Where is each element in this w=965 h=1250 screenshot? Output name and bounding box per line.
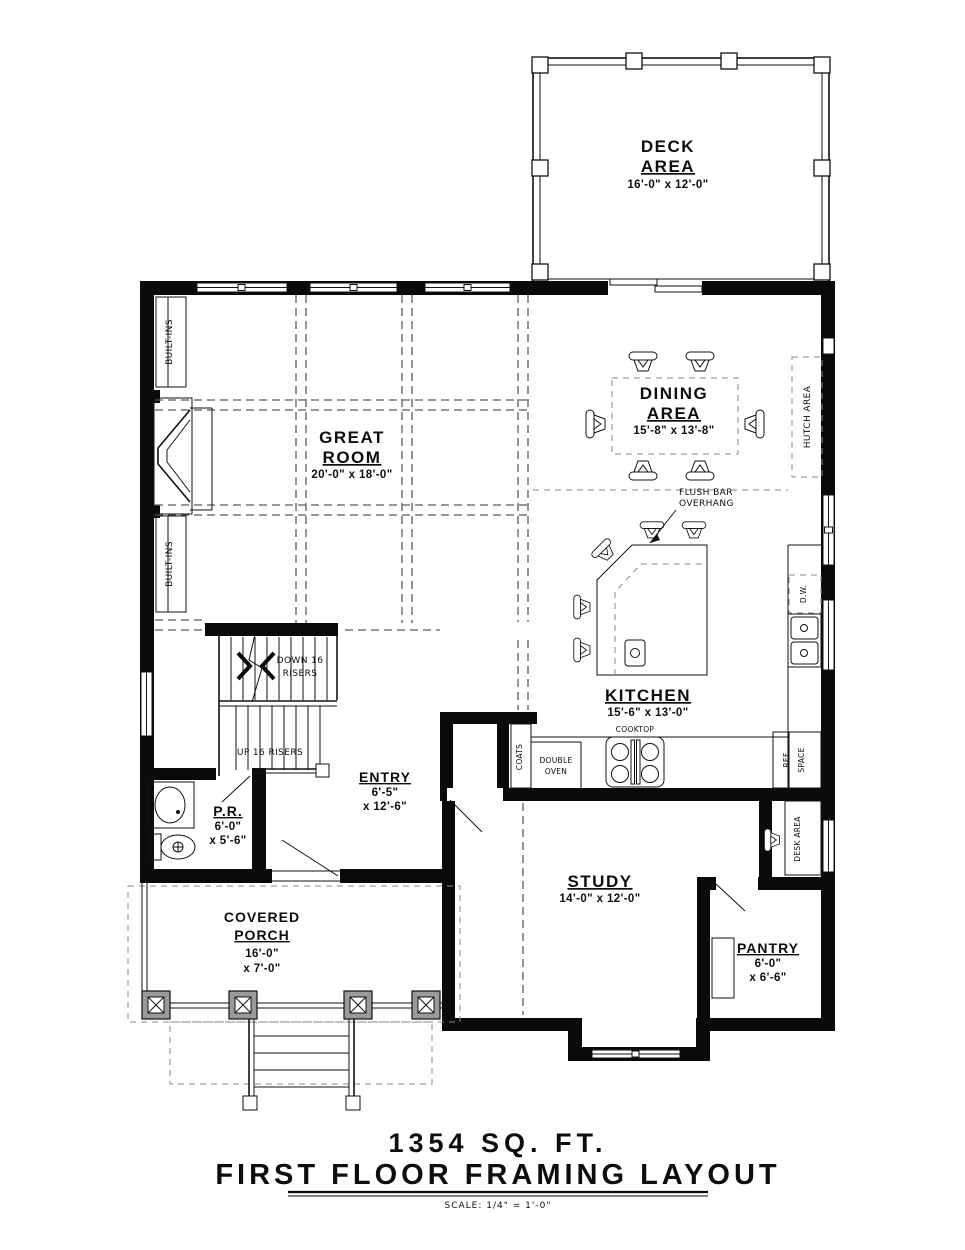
label-study: STUDY 14'-0" x 12'-0" [559, 872, 640, 905]
great-name: GREAT [319, 428, 385, 447]
down-risers-label2: RISERS [283, 669, 318, 679]
label-entry: ENTRY 6'-5" x 12'-6" [359, 769, 411, 813]
study-dims: 14'-0" x 12'-0" [559, 893, 640, 905]
deck-dims: 16'-0" x 12'-0" [627, 179, 708, 191]
window-icon [425, 283, 510, 292]
window-icon [197, 283, 287, 292]
window-icon [823, 495, 834, 565]
deck-post-icon [532, 264, 548, 280]
pantry-dim2: x 6'-6" [749, 972, 786, 984]
powder-room-fixtures [148, 782, 195, 860]
pantry-door-icon [716, 877, 758, 911]
bar-stool-icon [682, 522, 706, 538]
window-icon [823, 820, 834, 872]
kitchen-name: KITCHEN [605, 686, 691, 705]
dining-chair-icon [686, 461, 714, 480]
double-oven-label2: OVEN [545, 767, 567, 776]
built-ins-bottom-label: BUILT-INS [165, 541, 175, 587]
pantry-dim1: 6'-0" [755, 958, 782, 970]
deck-post-icon [814, 264, 830, 280]
dining-chair-icon [745, 410, 764, 438]
label-pantry: PANTRY 6'-0" x 6'-6" [737, 940, 799, 984]
label-kitchen: KITCHEN 15'-6" x 13'-0" [605, 686, 691, 719]
coats-label: COATS [515, 744, 524, 770]
dining-chair-icon [629, 352, 657, 371]
dining-name2: AREA [647, 404, 701, 423]
label-dining: DINING AREA 15'-8" x 13'-8" [633, 384, 714, 437]
deck-post-icon [532, 160, 548, 176]
window-icon [141, 672, 152, 736]
deck-post-icon [626, 53, 642, 69]
floor-plan-page: DECK AREA 16'-0" x 12'-0" DINING AREA 15… [0, 0, 965, 1250]
porch-column-icon [229, 991, 257, 1019]
dining-chair-icon [686, 352, 714, 371]
fireplace [154, 398, 212, 514]
pr-door-icon [216, 768, 252, 802]
flush-bar-label1: FLUSH BAR [679, 488, 733, 498]
window-icon [592, 1050, 680, 1058]
plan-scale-note: SCALE: 1/4" = 1'-0" [445, 1201, 552, 1211]
hutch-area-label: HUTCH AREA [803, 385, 813, 448]
dining-chair-icon [629, 461, 657, 480]
window-icon [310, 283, 397, 292]
built-ins-top-label: BUILT-INS [165, 319, 175, 365]
ref-label2: SPACE [797, 747, 806, 772]
deck-post-icon [814, 57, 830, 73]
double-oven-label1: DOUBLE [539, 756, 572, 765]
entry-name: ENTRY [359, 769, 411, 785]
pr-dim2: x 5'-6" [209, 835, 246, 847]
floor-plan-drawing: DECK AREA 16'-0" x 12'-0" DINING AREA 15… [0, 0, 965, 1250]
kitchen-sink-icon [788, 614, 821, 667]
deck-post-icon [721, 53, 737, 69]
cooktop-label: COOKTOP [616, 725, 655, 734]
porch-column-icon [412, 991, 440, 1019]
up-risers-label: UP 16 RISERS [237, 748, 303, 758]
double-oven-icon [531, 742, 581, 790]
vanity-sink-icon [148, 782, 194, 828]
great-dims: 20'-0" x 18'-0" [311, 469, 392, 481]
label-pr: P.R. 6'-0" x 5'-6" [209, 803, 246, 847]
entry-dim2: x 12'-6" [363, 801, 407, 813]
dining-chair-icon [586, 410, 605, 438]
pantry-name: PANTRY [737, 940, 799, 956]
ref-label1: REF [782, 752, 791, 767]
plan-sqft-title: 1354 SQ. FT. [388, 1128, 607, 1158]
window-icon [823, 600, 834, 670]
title-block: 1354 SQ. FT. FIRST FLOOR FRAMING LAYOUT … [215, 1128, 780, 1211]
cooktop-icon [606, 737, 664, 787]
dishwasher-label: D.W. [799, 585, 808, 603]
pr-name: P.R. [213, 803, 242, 819]
deck-name: DECK [641, 137, 695, 156]
porch-column-icon [142, 991, 170, 1019]
toilet-icon [150, 834, 195, 860]
pantry-shelf [712, 938, 734, 998]
window-icon [823, 338, 834, 354]
dining-name: DINING [640, 384, 709, 403]
entry-dim1: 6'-5" [372, 787, 399, 799]
dining-dims: 15'-8" x 13'-8" [633, 425, 714, 437]
bar-stool-icon [574, 638, 590, 662]
porch-dim2: x 7'-0" [243, 963, 280, 975]
sliding-door-icon [608, 279, 702, 295]
bar-stool-icon [590, 537, 618, 565]
flush-bar-label2: OVERHANG [679, 499, 734, 509]
desk-area-label: DESK AREA [793, 816, 802, 862]
label-deck: DECK AREA 16'-0" x 12'-0" [627, 137, 708, 191]
pr-dim1: 6'-0" [215, 821, 242, 833]
down-risers-label1: DOWN 16 [277, 656, 324, 666]
deck-name2: AREA [641, 157, 695, 176]
kitchen-island [574, 522, 707, 675]
porch-name: COVERED [224, 909, 300, 925]
great-name2: ROOM [323, 448, 382, 467]
deck-post-icon [814, 160, 830, 176]
entry-door-icon [272, 840, 340, 883]
porch-name2: PORCH [234, 927, 290, 943]
study-door-icon [447, 788, 503, 832]
room-labels: DECK AREA 16'-0" x 12'-0" DINING AREA 15… [209, 137, 799, 984]
plan-name-title: FIRST FLOOR FRAMING LAYOUT [215, 1159, 780, 1191]
deck-post-icon [532, 57, 548, 73]
study-name: STUDY [567, 872, 632, 891]
porch-column-icon [344, 991, 372, 1019]
bar-stool-icon [574, 595, 590, 619]
porch-dim1: 16'-0" [245, 948, 279, 960]
label-porch: COVERED PORCH 16'-0" x 7'-0" [224, 909, 300, 975]
porch-steps [243, 1019, 360, 1110]
label-great-room: GREAT ROOM 20'-0" x 18'-0" [311, 428, 392, 481]
kitchen-dims: 15'-6" x 13'-0" [607, 707, 688, 719]
